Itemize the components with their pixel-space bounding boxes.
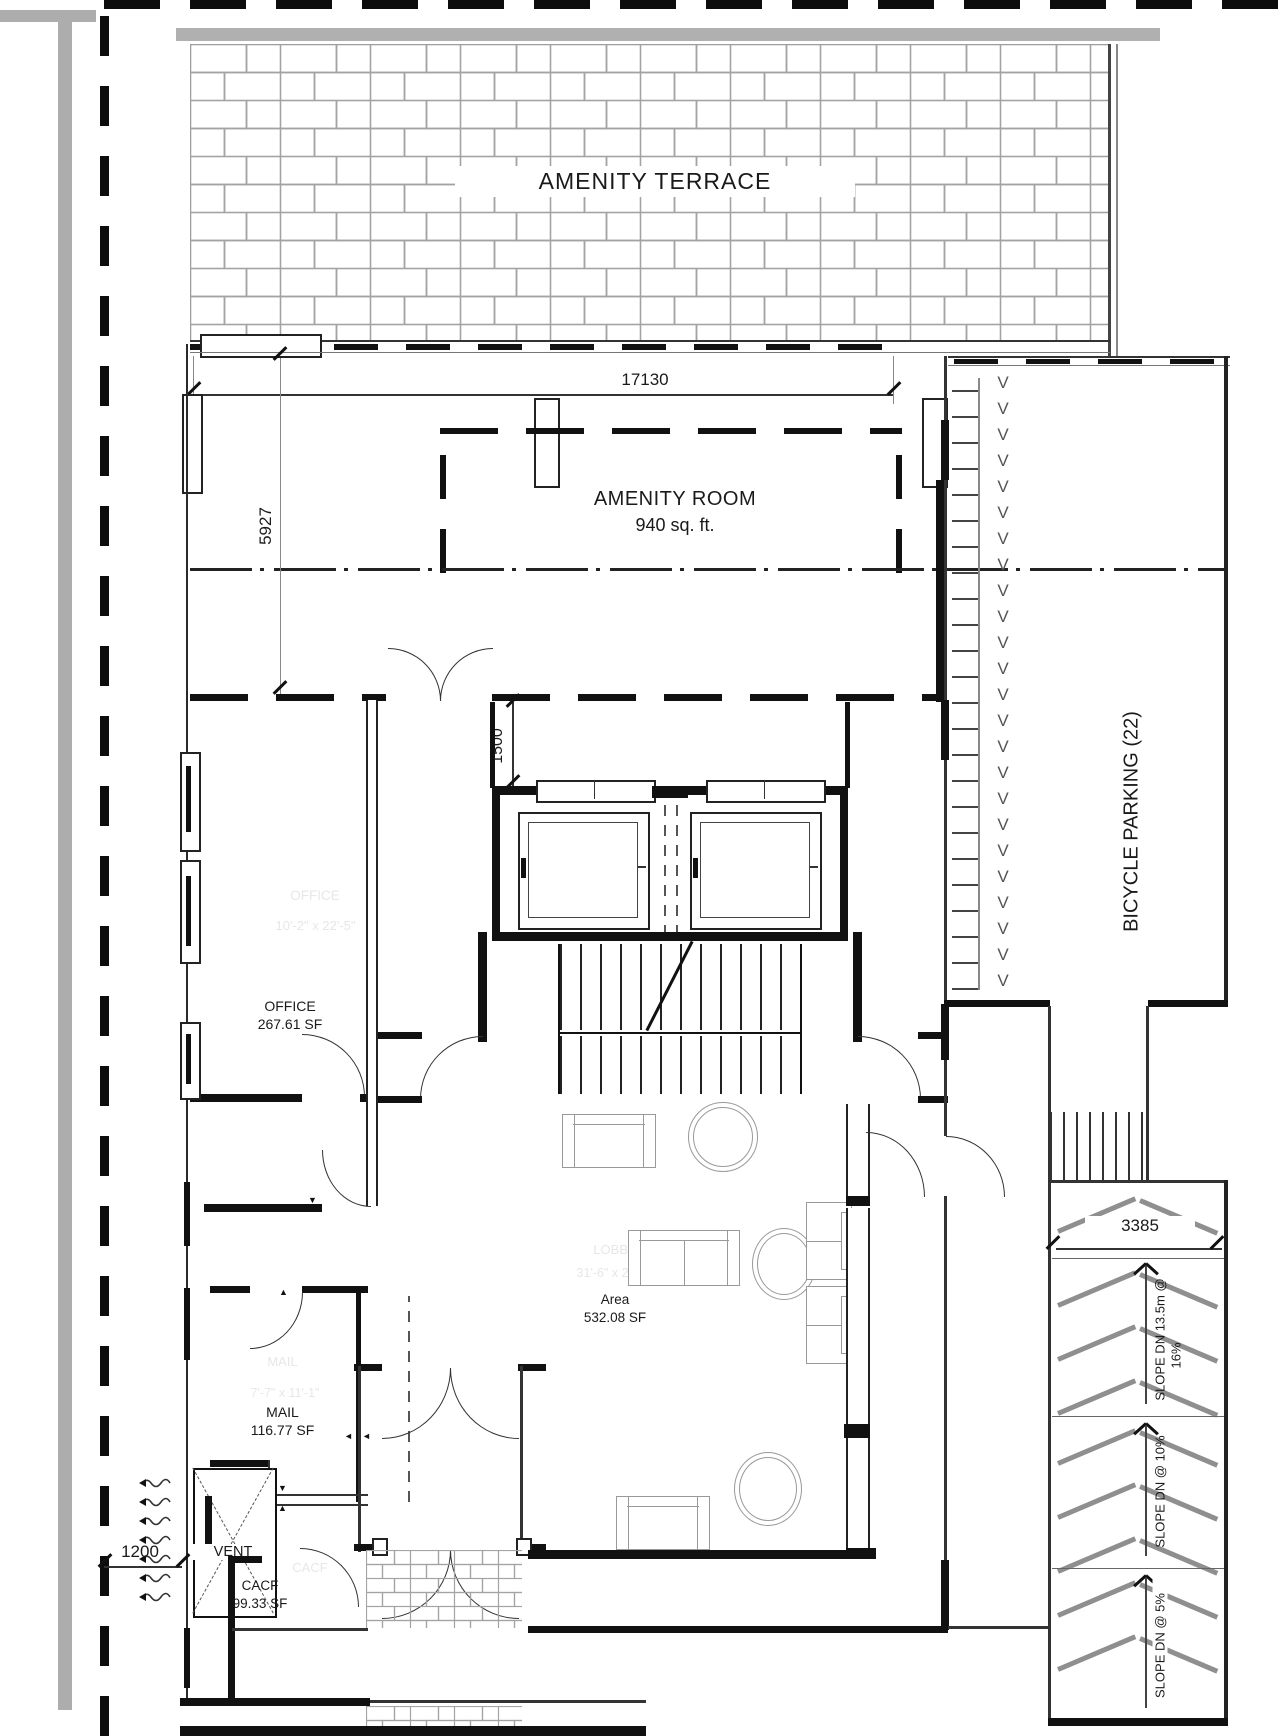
window-frame xyxy=(200,334,322,358)
wall-segment xyxy=(941,1004,949,1060)
dimension-line xyxy=(193,394,893,396)
vestibule-wall xyxy=(358,1366,361,1552)
sofa xyxy=(628,1230,740,1286)
wall-segment xyxy=(941,420,949,480)
terrace-right-wall xyxy=(1108,44,1111,358)
slope-arrow-line xyxy=(1145,1426,1147,1556)
stair-landing-line xyxy=(560,1032,800,1034)
airflow-arrow-icon xyxy=(136,1590,172,1604)
stair-treads-lower xyxy=(560,1036,800,1094)
window-sash xyxy=(186,876,191,946)
amenity-room-area: 940 sq. ft. xyxy=(500,515,850,536)
ramp-chevron xyxy=(1057,1428,1136,1465)
office-faint-dims: 10'-2" x 22'-5" xyxy=(228,918,403,933)
curved-wall xyxy=(420,1036,483,1099)
wall-segment xyxy=(210,1286,250,1293)
window-sash xyxy=(184,1288,190,1360)
terrace-right-wall-inner xyxy=(1116,44,1118,358)
ramp-chevron xyxy=(1139,1538,1218,1575)
stair-stringer xyxy=(558,944,560,1094)
lobby-south-wall xyxy=(528,1550,876,1559)
stair-treads-upper xyxy=(560,944,800,1030)
slope-arrow-line xyxy=(1145,1578,1147,1708)
dimension-line xyxy=(512,702,514,788)
dimension-tick xyxy=(887,381,902,396)
dimension-line xyxy=(1056,1248,1222,1250)
amenity-room-name: AMENITY ROOM xyxy=(500,488,850,511)
wall-segment xyxy=(1148,1000,1228,1007)
lobby-area-label: Area xyxy=(545,1292,685,1307)
wall-segment xyxy=(948,356,1230,358)
elevator-mark xyxy=(638,866,646,868)
wall-segment xyxy=(528,1626,948,1633)
wall-segment xyxy=(941,1560,949,1630)
bike-rack-symbols: V V V V V V V V V V V V V V V V V V V V … xyxy=(988,370,1018,994)
ramp-chevron xyxy=(1057,1580,1136,1617)
door-swing-arc xyxy=(322,1150,371,1207)
window-sash xyxy=(184,1628,190,1688)
partition-dashed-right xyxy=(896,428,902,573)
lobby-west-wall xyxy=(366,1100,378,1206)
window-sash xyxy=(186,1034,191,1084)
curved-wall xyxy=(858,1036,921,1099)
ramp-bottom-wall xyxy=(1048,1718,1228,1726)
floor-plan-canvas: AMENITY TERRACE 17130 AMENITY ROOM 940 s… xyxy=(0,0,1280,1736)
mail-name: MAIL xyxy=(210,1404,355,1420)
door-swing-arc xyxy=(450,1368,519,1439)
direction-triangle-icon: ◄ xyxy=(344,1432,353,1441)
ramp-east-wall xyxy=(1224,1180,1228,1720)
wall-segment xyxy=(492,786,500,940)
wall-segment xyxy=(840,786,848,940)
stair-wall xyxy=(853,932,862,1042)
door-swing-arc xyxy=(382,1368,451,1439)
elevator-rail xyxy=(521,858,526,878)
airflow-arrow-icon xyxy=(136,1571,172,1585)
wall-segment xyxy=(1048,1006,1051,1182)
site-wall-top-left xyxy=(0,10,96,22)
dimension-terrace-width: 17130 xyxy=(560,370,730,390)
wall-segment xyxy=(270,1494,368,1496)
slope-10-label: SLOPE DN @ 10% xyxy=(1153,1422,1168,1562)
wall-segment xyxy=(948,365,1230,366)
ramp-chevron xyxy=(1057,1378,1136,1415)
wall-segment xyxy=(652,786,688,798)
dimension-ramp-width: 3385 xyxy=(1085,1216,1195,1236)
wall-segment xyxy=(1146,1006,1149,1182)
ramp-segment-line xyxy=(1052,1416,1224,1417)
door-swing-arc xyxy=(302,1034,365,1097)
airflow-arrow-icon xyxy=(136,1476,172,1490)
direction-triangle-icon: ▲ xyxy=(278,1504,287,1513)
shaft-centerline xyxy=(664,800,666,936)
lobby-east-wall xyxy=(846,1438,870,1550)
direction-triangle-icon: ▼ xyxy=(308,1196,317,1205)
hatched-walkway xyxy=(1050,1112,1148,1182)
round-table xyxy=(734,1452,802,1526)
ramp-west-wall xyxy=(1048,1180,1051,1720)
dimension-line xyxy=(104,1566,182,1568)
ramp-chevron xyxy=(1057,1324,1136,1361)
mail-faint-dims: 7'-7" x 11'-1" xyxy=(205,1386,365,1400)
office-name: OFFICE xyxy=(215,998,365,1014)
office-faint-name: OFFICE xyxy=(240,888,390,903)
ramp-segment-line xyxy=(1052,1258,1224,1259)
bike-rack-rail-edge xyxy=(978,378,980,990)
ramp-chevron xyxy=(1139,1484,1218,1521)
bicycle-parking-label: BICYCLE PARKING (22) xyxy=(1121,702,1144,942)
vestibule-paving-pattern xyxy=(366,1550,522,1628)
airflow-arrow-icon xyxy=(136,1495,172,1509)
window-wall-dashes xyxy=(954,359,1224,364)
wall-segment xyxy=(232,1628,368,1631)
mail-faint-name: MAIL xyxy=(210,1354,355,1369)
ramp-chevron xyxy=(1139,1582,1218,1619)
elevator-mark xyxy=(810,866,818,868)
elevator-rail xyxy=(693,858,698,878)
stair-wall xyxy=(478,932,487,1042)
wall-segment xyxy=(492,694,944,701)
property-line-left xyxy=(100,0,109,1736)
ramp-chevron xyxy=(1139,1272,1218,1309)
dimension-amenity-depth: 5927 xyxy=(256,496,276,556)
stair-stringer xyxy=(800,944,802,1094)
site-wall-left xyxy=(58,10,72,1710)
window-sash xyxy=(186,766,191,832)
wall-segment xyxy=(948,1626,1048,1629)
door-swing-arc xyxy=(440,648,493,701)
window-sash xyxy=(184,1182,190,1246)
ramp-chevron xyxy=(1057,1482,1136,1519)
ramp-segment-line xyxy=(1052,1568,1224,1569)
round-table xyxy=(688,1102,758,1172)
site-bottom-band xyxy=(180,1726,646,1736)
bike-rack-rail xyxy=(952,378,978,990)
cacf-name: CACF xyxy=(205,1578,315,1593)
shaft-centerline xyxy=(676,800,678,936)
centerline xyxy=(190,568,1224,571)
vestibule-wall xyxy=(520,1366,523,1552)
elevator-shaft-bottom-wall xyxy=(492,932,848,941)
direction-triangle-icon: ▲ xyxy=(279,1288,288,1297)
ramp-top-wall xyxy=(1050,1180,1228,1183)
slope-5-label: SLOPE DN @ 5% xyxy=(1153,1578,1168,1714)
wall-segment xyxy=(204,1204,322,1212)
elevator-door-split xyxy=(764,780,765,799)
ramp-chevron xyxy=(1139,1636,1218,1673)
wall-segment xyxy=(944,1000,1050,1007)
dimension-ext-line xyxy=(893,356,894,404)
door-jamb xyxy=(846,1196,870,1206)
direction-triangle-icon: ◄ xyxy=(362,1432,371,1441)
partition-dashed-left xyxy=(440,428,446,573)
wall-segment xyxy=(845,702,850,788)
airflow-arrow-icon xyxy=(136,1514,172,1528)
dimension-ext-line xyxy=(280,358,281,694)
ramp-chevron xyxy=(1057,1270,1136,1307)
door-swing-arc xyxy=(250,1292,303,1349)
ramp-chevron xyxy=(1057,1634,1136,1671)
property-line-top xyxy=(104,0,1280,9)
wall-segment xyxy=(210,1460,270,1467)
wall-segment xyxy=(190,340,1110,342)
wall-segment xyxy=(941,700,949,760)
door-swing-arc xyxy=(388,648,441,701)
slope-16-label-line2: 16% xyxy=(1169,1326,1184,1386)
wall-segment xyxy=(370,1700,646,1703)
lobby-east-wall xyxy=(846,1208,870,1432)
building-top-band xyxy=(176,28,1160,41)
door-swing-arc xyxy=(866,1132,925,1197)
dimension-site-edge: 1200 xyxy=(100,1542,180,1562)
office-area: 267.61 SF xyxy=(215,1016,365,1032)
wall-segment xyxy=(180,1698,370,1706)
wall-segment xyxy=(936,480,944,702)
wall-segment xyxy=(844,1424,870,1438)
elevator-door xyxy=(706,780,826,803)
wall-segment xyxy=(190,694,386,701)
partition-dashed-top xyxy=(440,428,902,434)
cacf-faint-name: CACF xyxy=(250,1560,370,1575)
sofa xyxy=(562,1114,656,1168)
elevator-door-split xyxy=(594,780,595,799)
lobby-area-value: 532.08 SF xyxy=(545,1310,685,1325)
wall-segment xyxy=(490,702,495,788)
elevator-car-inner xyxy=(700,822,810,918)
ramp-chevron xyxy=(1139,1380,1218,1417)
sofa xyxy=(616,1496,710,1550)
ramp-chevron xyxy=(1139,1430,1218,1467)
terrace-label: AMENITY TERRACE xyxy=(455,166,855,197)
mail-area: 116.77 SF xyxy=(210,1422,355,1438)
slope-arrow-line xyxy=(1145,1266,1147,1404)
elevator-door xyxy=(536,780,656,803)
bike-room-east-wall xyxy=(1224,356,1228,1006)
wall-segment xyxy=(190,1094,302,1102)
direction-triangle-icon: ▼ xyxy=(278,1484,287,1493)
door-swing-arc xyxy=(946,1136,1005,1197)
window-mullion xyxy=(534,398,560,488)
cacf-area: 99.33 SF xyxy=(205,1596,315,1611)
wall-segment xyxy=(190,352,1110,353)
elevator-car-inner xyxy=(528,822,638,918)
slope-16-label-line1: SLOPE DN 13.5m @ xyxy=(1153,1265,1168,1415)
